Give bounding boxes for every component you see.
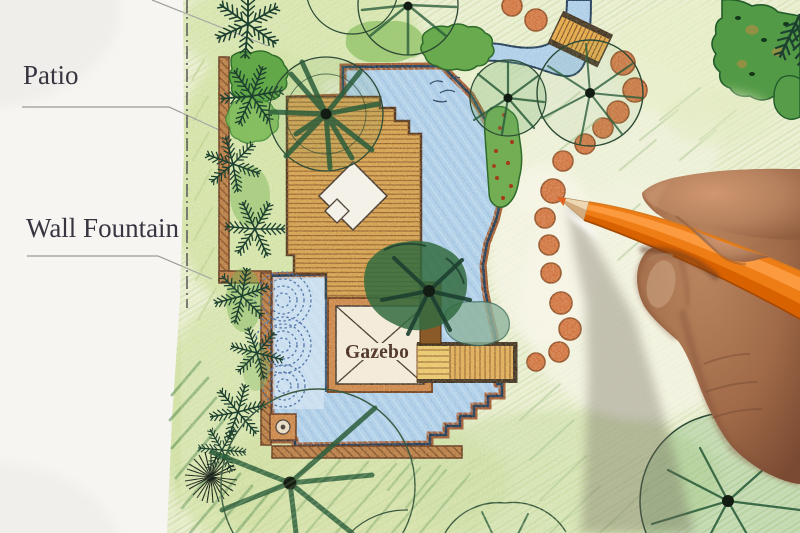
svg-text:Wall Fountain: Wall Fountain	[26, 213, 180, 243]
svg-text:Patio: Patio	[23, 60, 79, 90]
